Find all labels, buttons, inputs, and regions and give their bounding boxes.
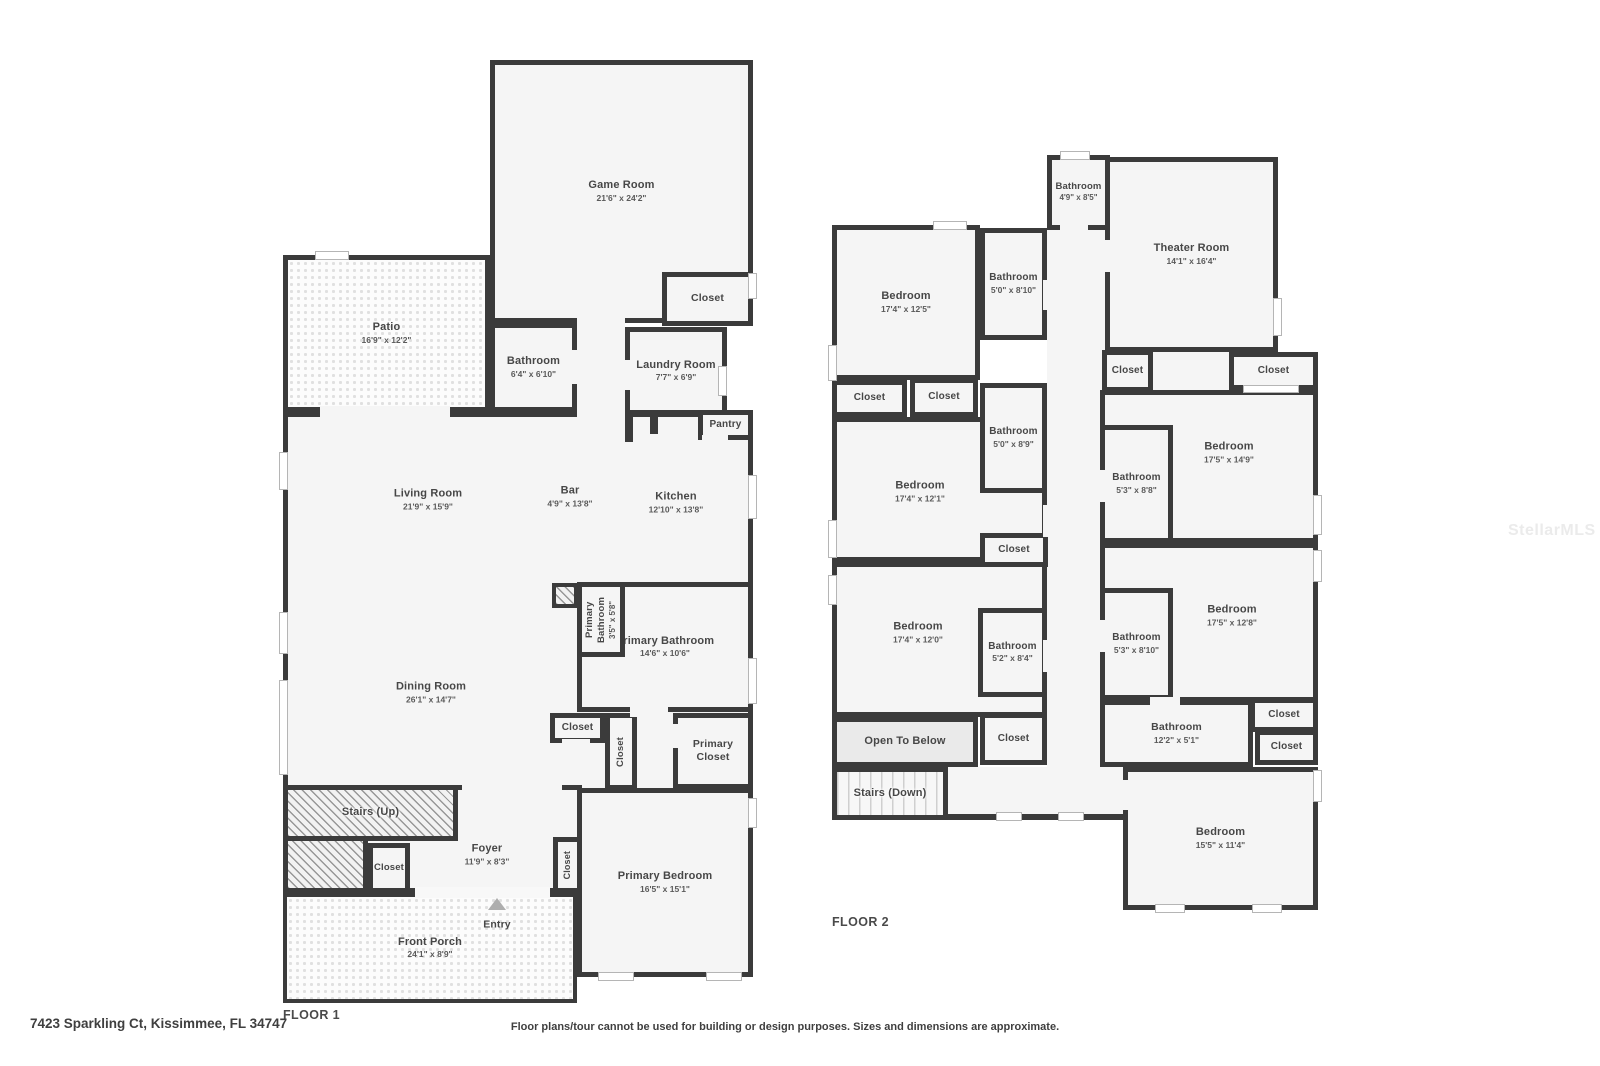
window-marker (315, 251, 349, 260)
room-bathroom-e: Bathroom 5'3" x 8'10" (1100, 588, 1173, 700)
window-marker (828, 520, 837, 558)
window-marker (933, 221, 967, 230)
wall-segment (625, 412, 633, 442)
room-bathroom-c: Bathroom 5'3" x 8'8" (1100, 425, 1173, 543)
entry-arrow-icon (488, 898, 506, 910)
room-label-living-room: Living Room 21'9" x 15'9" (394, 488, 462, 513)
window-marker (279, 612, 288, 654)
stellar-mls-watermark: StellarMLS (1508, 522, 1596, 540)
window-marker (748, 798, 757, 828)
room-label-bedroom-4: Bedroom 17'5" x 14'9" (1204, 441, 1254, 466)
door-opening (462, 784, 562, 794)
room-label-bedroom-3: Bedroom 17'4" x 12'0" (893, 621, 943, 646)
window-marker (1058, 812, 1084, 821)
room-label-bedroom-5: Bedroom 17'5" x 12'8" (1207, 604, 1257, 629)
door-opening (630, 707, 668, 717)
door-opening (1150, 697, 1180, 707)
disclaimer-text: Floor plans/tour cannot be used for buil… (500, 1021, 1070, 1033)
door-opening (1060, 225, 1088, 235)
door-opening (1097, 620, 1107, 652)
window-marker (828, 575, 837, 605)
door-opening (669, 724, 679, 748)
door-opening (1043, 505, 1053, 537)
door-opening (1043, 640, 1053, 672)
hallway-floor (947, 767, 1123, 815)
room-closet-e: Closet (1250, 698, 1318, 732)
door-opening (577, 318, 625, 328)
room-bathroom-a: Bathroom 5'0" x 8'10" (980, 228, 1047, 340)
door-opening (1043, 280, 1053, 310)
wall-segment (1047, 814, 1051, 820)
window-marker (718, 366, 727, 396)
room-label-bar: Bar 4'9" x 13'8" (547, 485, 592, 510)
window-marker (1313, 770, 1322, 802)
door-opening (1120, 780, 1130, 810)
room-label-foyer: Foyer 11'9" x 8'3" (465, 843, 510, 868)
window-marker (1313, 495, 1322, 535)
room-stairs-down: Stairs (Down) (832, 767, 948, 820)
window-marker (1060, 151, 1090, 160)
room-label-kitchen: Kitchen 12'10" x 13'8" (649, 491, 704, 516)
door-opening (1102, 240, 1112, 272)
hallway-floor (1153, 352, 1229, 392)
room-closet-d: Closet (980, 713, 1047, 765)
room-closet-mid: Closet (1102, 350, 1153, 392)
window-marker (1252, 904, 1282, 913)
wall-segment (650, 412, 658, 434)
room-bedroom-1: Bedroom 17'4" x 12'5" (832, 225, 980, 380)
door-opening (577, 410, 625, 419)
open-to-below: Open To Below (832, 717, 978, 767)
room-closet-f: Closet (1255, 730, 1318, 765)
room-bedroom-6: Bedroom 15'5" x 11'4" (1123, 767, 1318, 910)
window-marker (1273, 298, 1282, 336)
floor2-plan: Bedroom 17'4" x 12'5" Bedroom 15'5" x 11… (0, 0, 1600, 1066)
window-marker (1313, 550, 1322, 582)
floor2-caption: FLOOR 2 (832, 915, 889, 929)
room-label-entry: Entry (483, 918, 511, 931)
room-label-bedroom-2: Bedroom 17'4" x 12'1" (895, 480, 945, 505)
window-marker (1155, 904, 1185, 913)
room-theater: Theater Room 14'1" x 16'4" (1105, 157, 1278, 352)
window-marker (598, 972, 634, 981)
door-opening (572, 350, 582, 384)
window-marker (748, 273, 757, 299)
window-marker (279, 452, 288, 490)
floor1-caption: FLOOR 1 (283, 1008, 340, 1022)
window-marker (748, 475, 757, 519)
room-closet-c1: Closet (832, 380, 907, 417)
door-opening (320, 406, 450, 418)
window-marker (828, 345, 837, 381)
door-opening (562, 739, 590, 748)
wall-segment (947, 814, 1123, 820)
door-opening (622, 360, 632, 390)
room-bathroom-b: Bathroom 5'0" x 8'9" (980, 383, 1047, 493)
room-closet-mid2: Closet (980, 533, 1048, 567)
floor-plan-canvas: Patio 16'9" x 12'2" Game Room 21'6" x 24… (0, 0, 1600, 1066)
room-bathroom-top: Bathroom 4'9" x 8'5" (1047, 155, 1110, 230)
window-marker (279, 680, 288, 775)
window-marker (996, 812, 1022, 821)
door-opening (1097, 470, 1107, 502)
room-closet-c2: Closet (910, 378, 978, 417)
property-address: 7423 Sparkling Ct, Kissimmee, FL 34747 (30, 1016, 287, 1031)
room-bathroom-d: Bathroom 5'2" x 8'4" (978, 608, 1047, 697)
room-label-dining-room: Dining Room 26'1" x 14'7" (396, 681, 466, 706)
window-marker (748, 658, 757, 704)
entry-opening (415, 887, 550, 898)
room-bathroom-f: Bathroom 12'2" x 5'1" (1100, 700, 1253, 767)
window-marker (1243, 385, 1299, 393)
door-opening (702, 435, 728, 444)
window-marker (706, 972, 742, 981)
